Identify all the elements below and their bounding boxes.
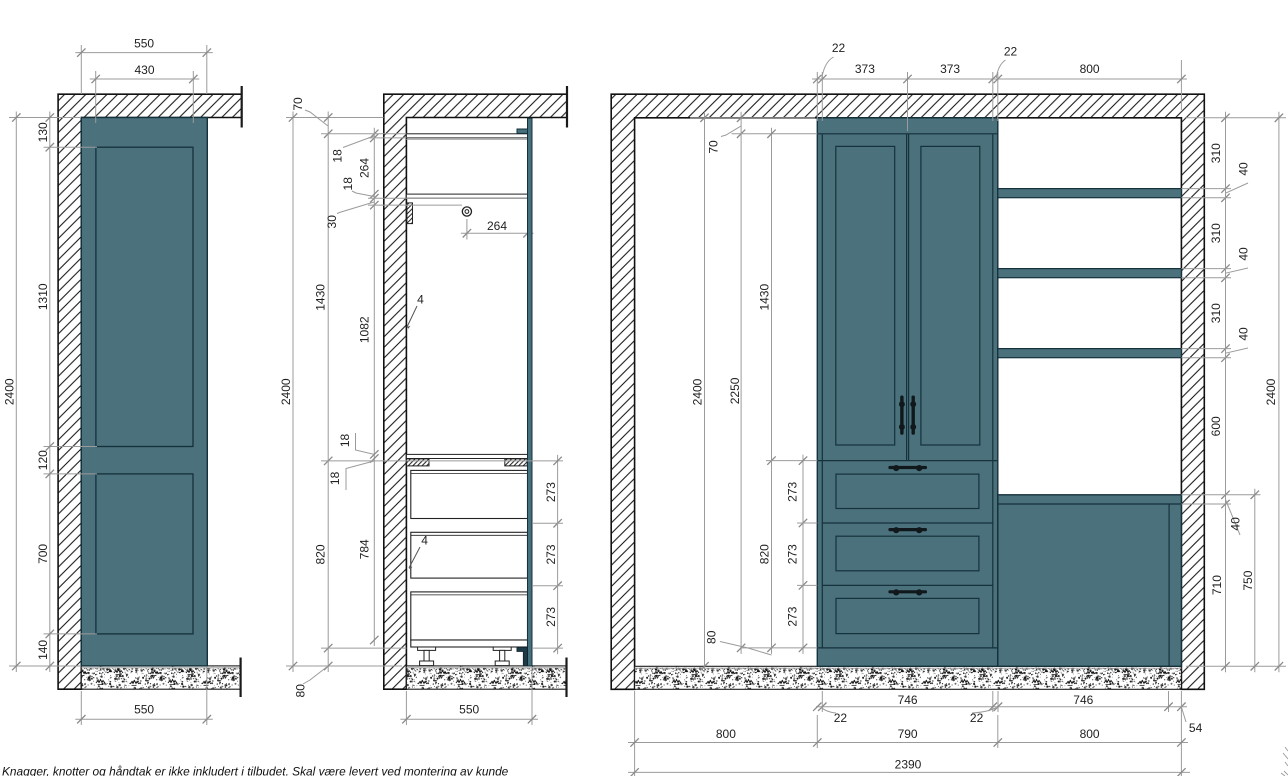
svg-text:790: 790 — [898, 727, 918, 741]
svg-text:800: 800 — [716, 727, 736, 741]
svg-text:1430: 1430 — [758, 284, 772, 311]
svg-text:140: 140 — [36, 640, 50, 660]
svg-text:18: 18 — [330, 149, 344, 163]
svg-text:2400: 2400 — [279, 378, 293, 405]
svg-text:550: 550 — [134, 37, 154, 51]
svg-text:430: 430 — [134, 63, 154, 77]
svg-text:800: 800 — [1080, 62, 1100, 76]
svg-text:746: 746 — [1073, 693, 1093, 707]
svg-text:273: 273 — [544, 482, 558, 502]
svg-text:40: 40 — [1236, 162, 1250, 176]
svg-text:4: 4 — [421, 534, 428, 548]
svg-text:40: 40 — [1228, 517, 1242, 531]
svg-text:120: 120 — [36, 450, 50, 470]
svg-text:310: 310 — [1209, 143, 1223, 163]
svg-text:800: 800 — [1080, 727, 1100, 741]
svg-text:273: 273 — [786, 544, 800, 564]
svg-text:130: 130 — [36, 122, 50, 142]
svg-text:710: 710 — [1210, 575, 1224, 595]
svg-text:273: 273 — [544, 607, 558, 627]
svg-text:273: 273 — [786, 481, 800, 501]
svg-text:40: 40 — [1236, 327, 1250, 341]
svg-text:273: 273 — [544, 544, 558, 564]
svg-text:54: 54 — [1189, 721, 1203, 735]
svg-text:70: 70 — [707, 140, 721, 154]
svg-text:264: 264 — [487, 219, 507, 233]
svg-text:2400: 2400 — [1264, 378, 1278, 405]
svg-text:30: 30 — [325, 215, 339, 229]
svg-text:820: 820 — [314, 544, 328, 564]
svg-text:264: 264 — [358, 158, 372, 178]
svg-text:80: 80 — [294, 684, 308, 698]
svg-text:18: 18 — [341, 177, 355, 191]
svg-text:784: 784 — [358, 539, 372, 559]
svg-text:18: 18 — [328, 471, 342, 485]
svg-text:40: 40 — [1236, 247, 1250, 261]
svg-text:310: 310 — [1209, 223, 1223, 243]
svg-text:70: 70 — [291, 97, 305, 111]
svg-text:1310: 1310 — [36, 283, 50, 310]
svg-text:2400: 2400 — [690, 378, 704, 405]
svg-text:80: 80 — [705, 630, 719, 644]
svg-text:750: 750 — [1241, 570, 1255, 590]
svg-text:746: 746 — [898, 693, 918, 707]
svg-text:310: 310 — [1209, 303, 1223, 323]
svg-text:820: 820 — [758, 544, 772, 564]
svg-text:4: 4 — [417, 293, 424, 307]
svg-text:550: 550 — [459, 703, 479, 717]
svg-text:22: 22 — [834, 711, 848, 725]
svg-text:700: 700 — [36, 544, 50, 564]
svg-text:2390: 2390 — [895, 757, 922, 771]
svg-text:18: 18 — [338, 434, 352, 448]
svg-text:273: 273 — [786, 606, 800, 626]
svg-text:Knagger, knotter og håndtak er: Knagger, knotter og håndtak er ikke inkl… — [2, 765, 509, 776]
svg-text:22: 22 — [1004, 45, 1018, 59]
svg-text:550: 550 — [134, 703, 154, 717]
svg-text:373: 373 — [940, 62, 960, 76]
svg-text:2250: 2250 — [728, 377, 742, 404]
svg-text:22: 22 — [970, 711, 984, 725]
svg-text:373: 373 — [855, 62, 875, 76]
svg-text:22: 22 — [832, 41, 846, 55]
svg-text:600: 600 — [1209, 416, 1223, 436]
svg-text:1082: 1082 — [358, 316, 372, 343]
svg-text:1430: 1430 — [314, 284, 328, 311]
svg-text:2400: 2400 — [3, 378, 17, 405]
